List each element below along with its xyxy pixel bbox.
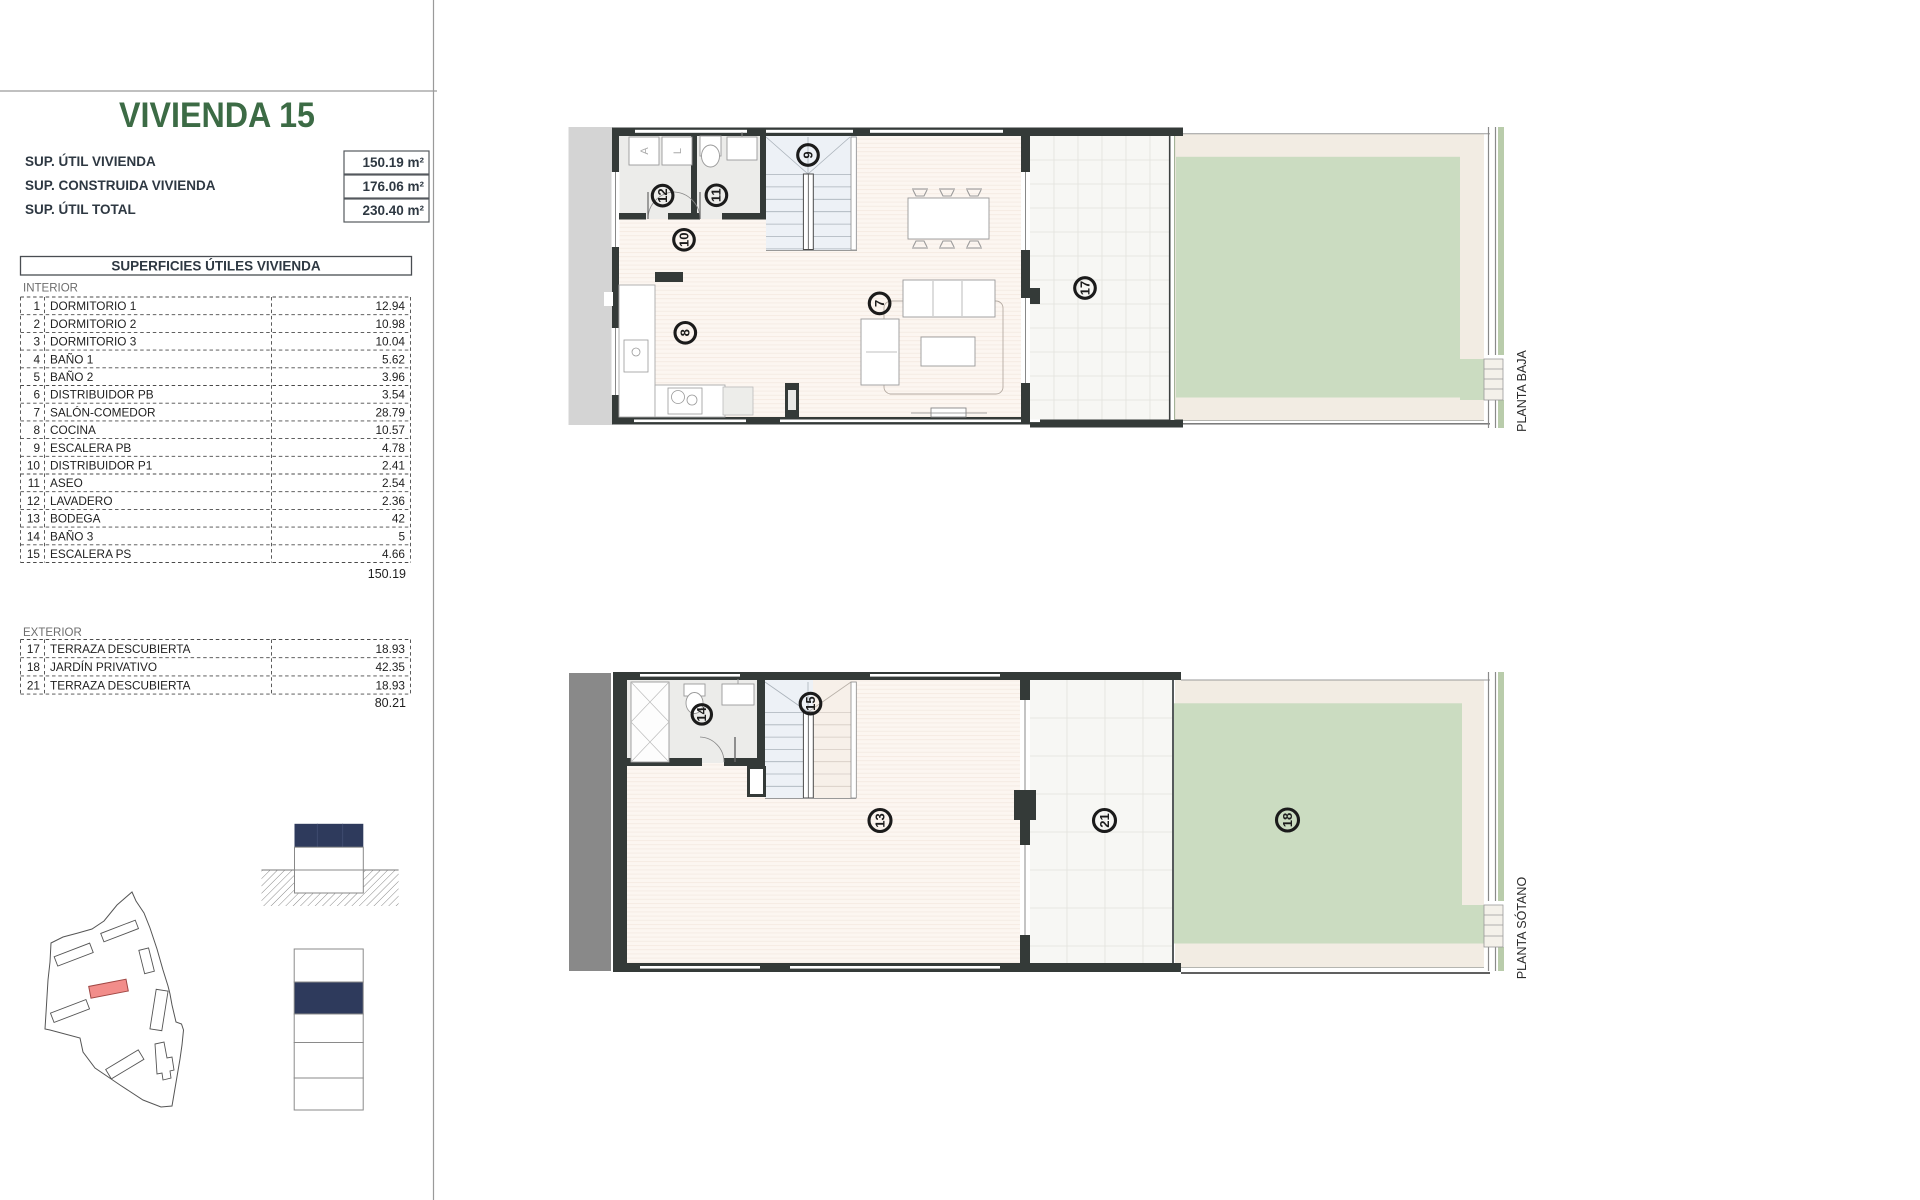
svg-text:2: 2 (33, 317, 40, 331)
svg-text:21: 21 (27, 678, 40, 692)
svg-text:2.36: 2.36 (382, 494, 405, 508)
svg-text:14: 14 (694, 706, 709, 721)
svg-text:BODEGA: BODEGA (50, 512, 101, 526)
svg-text:42: 42 (392, 512, 405, 526)
svg-text:SUP. CONSTRUIDA VIVIENDA: SUP. CONSTRUIDA VIVIENDA (25, 178, 216, 193)
svg-text:2.41: 2.41 (382, 459, 405, 473)
svg-text:17: 17 (1077, 281, 1092, 295)
svg-text:DORMITORIO 3: DORMITORIO 3 (50, 335, 137, 349)
svg-text:LAVADERO: LAVADERO (50, 494, 113, 508)
svg-text:5: 5 (33, 370, 40, 384)
svg-text:176.06 m²: 176.06 m² (362, 179, 424, 194)
svg-text:4.66: 4.66 (382, 547, 405, 561)
svg-text:18: 18 (1280, 813, 1295, 827)
svg-text:3.54: 3.54 (382, 388, 405, 402)
svg-text:150.19 m²: 150.19 m² (362, 155, 424, 170)
svg-text:13: 13 (872, 813, 887, 827)
svg-text:7: 7 (33, 405, 40, 419)
svg-text:4.78: 4.78 (382, 441, 405, 455)
svg-text:2.54: 2.54 (382, 476, 405, 490)
svg-text:28.79: 28.79 (375, 405, 405, 419)
svg-text:A: A (639, 147, 651, 155)
svg-text:9: 9 (800, 151, 815, 158)
svg-text:BAÑO 3: BAÑO 3 (50, 529, 94, 543)
svg-text:10: 10 (676, 233, 691, 247)
svg-text:ESCALERA PS: ESCALERA PS (50, 547, 131, 561)
svg-text:TERRAZA DESCUBIERTA: TERRAZA DESCUBIERTA (50, 642, 191, 656)
svg-text:5.62: 5.62 (382, 352, 405, 366)
svg-text:12: 12 (27, 494, 40, 508)
svg-text:SUP. ÚTIL TOTAL: SUP. ÚTIL TOTAL (25, 202, 136, 217)
svg-text:10: 10 (27, 459, 41, 473)
svg-text:15: 15 (803, 696, 818, 710)
svg-text:7: 7 (872, 300, 887, 307)
svg-text:SUPERFICIES ÚTILES VIVIENDA: SUPERFICIES ÚTILES VIVIENDA (111, 259, 321, 274)
svg-text:SALÓN-COMEDOR: SALÓN-COMEDOR (50, 405, 156, 419)
svg-text:9: 9 (33, 441, 40, 455)
svg-text:DORMITORIO 1: DORMITORIO 1 (50, 299, 136, 313)
svg-text:PLANTA BAJA: PLANTA BAJA (1515, 349, 1529, 431)
svg-text:JARDÍN PRIVATIVO: JARDÍN PRIVATIVO (50, 660, 157, 674)
svg-text:10.98: 10.98 (375, 317, 405, 331)
svg-text:VIVIENDA 15: VIVIENDA 15 (119, 96, 315, 135)
svg-text:10.57: 10.57 (375, 423, 405, 437)
svg-text:42.35: 42.35 (375, 660, 405, 674)
svg-text:11: 11 (28, 476, 40, 490)
svg-text:TERRAZA DESCUBIERTA: TERRAZA DESCUBIERTA (50, 678, 191, 692)
svg-text:150.19: 150.19 (368, 567, 406, 581)
svg-text:COCINA: COCINA (50, 423, 96, 437)
svg-text:15: 15 (27, 547, 41, 561)
svg-text:ESCALERA PB: ESCALERA PB (50, 441, 131, 455)
svg-text:12.94: 12.94 (375, 299, 405, 313)
svg-text:EXTERIOR: EXTERIOR (23, 627, 82, 639)
svg-text:L: L (672, 148, 684, 154)
svg-text:5: 5 (398, 529, 405, 543)
svg-text:80.21: 80.21 (375, 696, 406, 710)
svg-text:230.40 m²: 230.40 m² (362, 203, 424, 218)
svg-text:17: 17 (27, 642, 40, 656)
svg-text:18.93: 18.93 (375, 678, 405, 692)
svg-text:18.93: 18.93 (375, 642, 405, 656)
svg-text:3.96: 3.96 (382, 370, 405, 384)
svg-text:12: 12 (655, 188, 670, 202)
svg-text:18: 18 (27, 660, 41, 674)
svg-text:DORMITORIO 2: DORMITORIO 2 (50, 317, 136, 331)
svg-text:21: 21 (1097, 813, 1112, 827)
svg-text:13: 13 (27, 512, 41, 526)
svg-text:3: 3 (33, 335, 40, 349)
svg-text:14: 14 (27, 529, 41, 543)
svg-text:10.04: 10.04 (375, 335, 405, 349)
svg-text:DISTRIBUIDOR PB: DISTRIBUIDOR PB (50, 388, 154, 402)
svg-text:SUP. ÚTIL VIVIENDA: SUP. ÚTIL VIVIENDA (25, 154, 156, 169)
svg-text:8: 8 (33, 423, 40, 437)
svg-text:4: 4 (33, 352, 40, 366)
svg-text:11: 11 (709, 188, 724, 202)
svg-text:8: 8 (678, 329, 693, 336)
svg-text:PLANTA SÓTANO: PLANTA SÓTANO (1514, 877, 1529, 980)
svg-text:BAÑO 1: BAÑO 1 (50, 352, 93, 366)
svg-text:BAÑO 2: BAÑO 2 (50, 370, 93, 384)
svg-text:DISTRIBUIDOR P1: DISTRIBUIDOR P1 (50, 459, 152, 473)
svg-text:6: 6 (33, 388, 40, 402)
svg-text:INTERIOR: INTERIOR (23, 283, 78, 295)
svg-text:ASEO: ASEO (50, 476, 83, 490)
svg-text:1: 1 (33, 299, 40, 313)
